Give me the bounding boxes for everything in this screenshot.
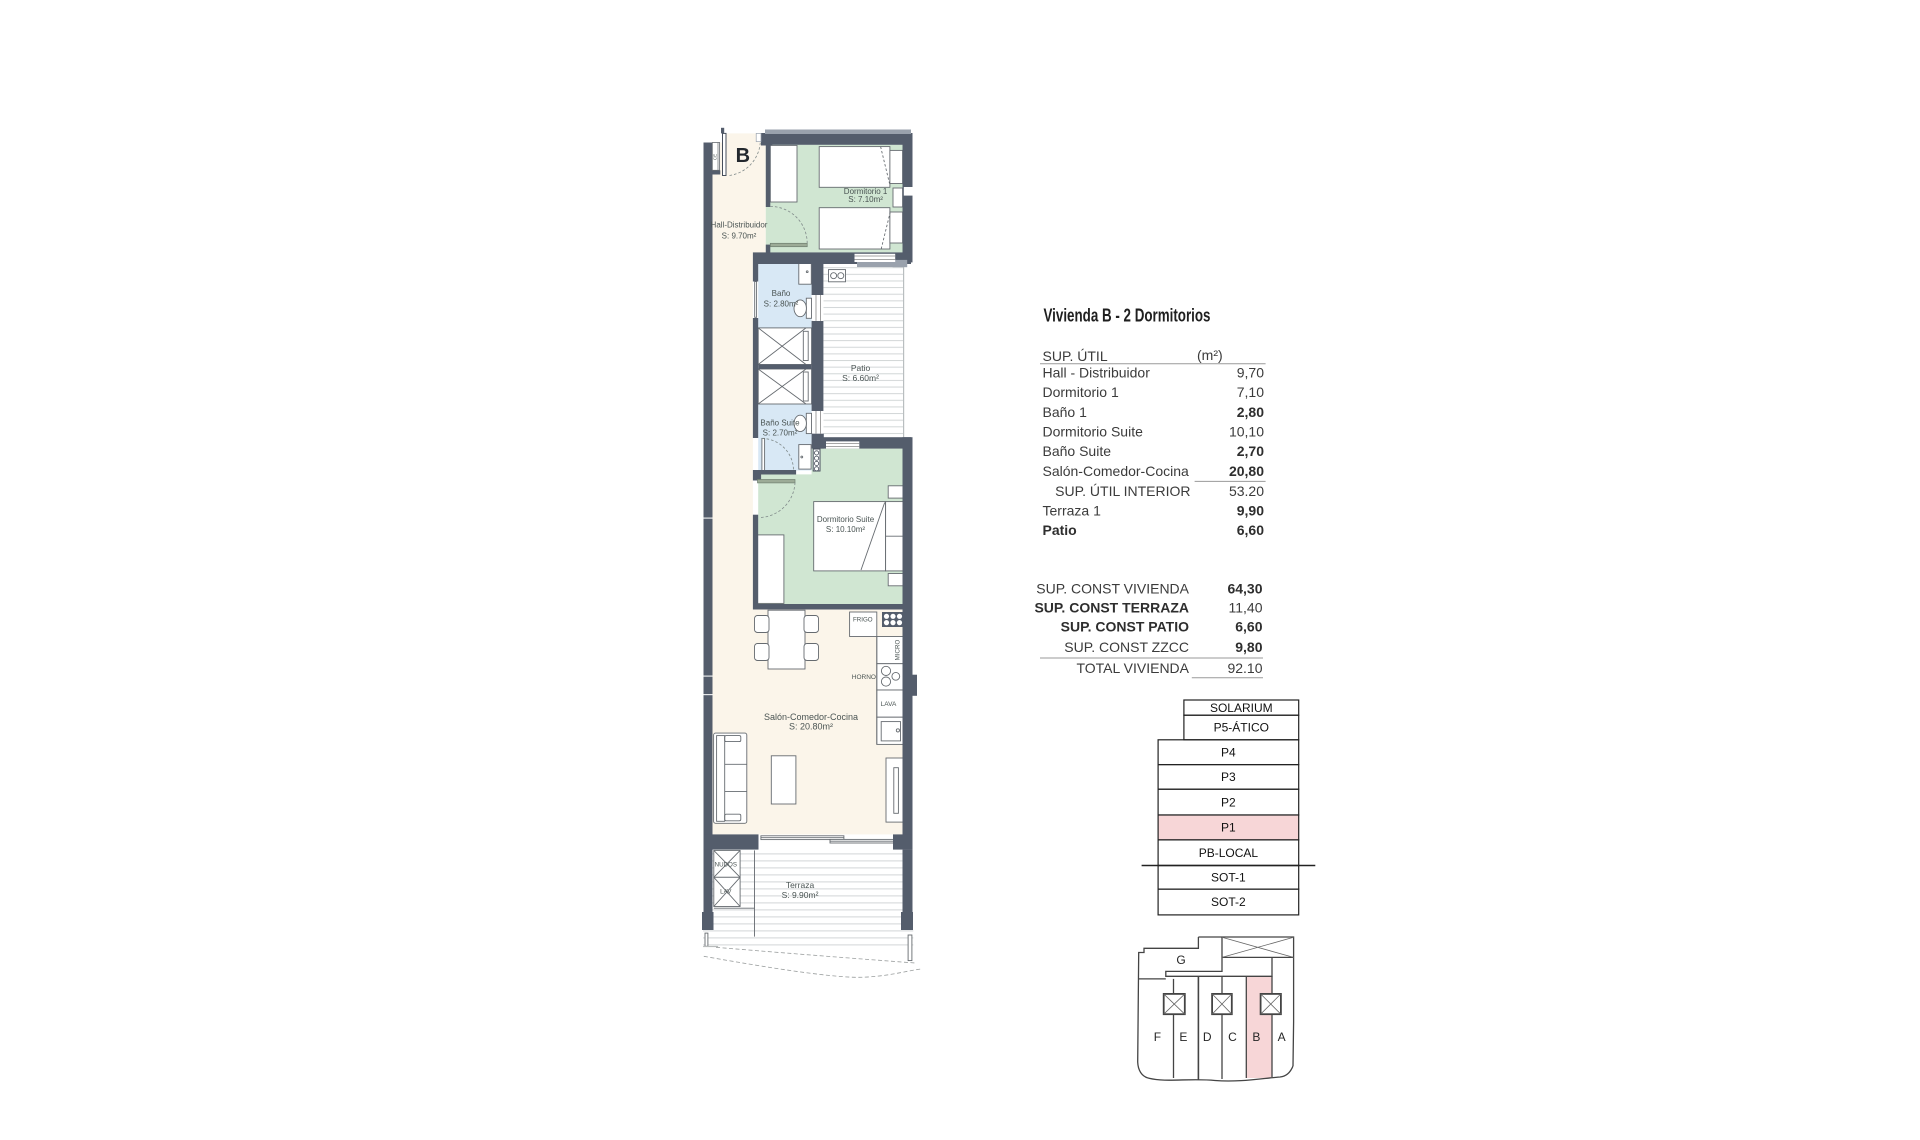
svg-text:SUP. CONST PATIO: SUP. CONST PATIO [1061,619,1189,635]
svg-text:NUDOS: NUDOS [715,862,737,869]
svg-text:LAV: LAV [720,888,732,895]
svg-text:SUP. CONST TERRAZA: SUP. CONST TERRAZA [1034,600,1189,616]
svg-text:SUP. CONST VIVIENDA: SUP. CONST VIVIENDA [1036,581,1189,597]
svg-text:Baño Suite: Baño Suite [1043,443,1112,459]
svg-text:P5-ÁTICO: P5-ÁTICO [1214,720,1269,735]
svg-text:A: A [1278,1030,1286,1044]
svg-text:Dormitorio Suite: Dormitorio Suite [817,515,875,524]
svg-text:P2: P2 [1221,795,1236,809]
svg-text:11,40: 11,40 [1229,600,1263,616]
svg-text:CE: CE [713,154,718,160]
svg-text:Hall - Distribuidor: Hall - Distribuidor [1043,364,1151,380]
svg-text:P4: P4 [1221,745,1236,759]
svg-text:S: 20.80m²: S: 20.80m² [789,721,833,731]
svg-text:Terraza: Terraza [786,880,815,890]
svg-text:10,10: 10,10 [1229,424,1264,440]
svg-text:B: B [736,145,750,167]
svg-text:SOT-2: SOT-2 [1211,895,1246,909]
svg-text:Salón-Comedor-Cocina: Salón-Comedor-Cocina [1043,463,1190,479]
svg-text:S: 9.70m²: S: 9.70m² [722,232,757,241]
svg-text:F: F [1154,1030,1161,1044]
svg-text:Baño: Baño [772,289,791,298]
svg-text:2,70: 2,70 [1237,443,1264,459]
svg-text:Baño Suite: Baño Suite [760,419,800,428]
svg-text:Dormitorio Suite: Dormitorio Suite [1043,424,1144,440]
svg-text:6,60: 6,60 [1235,619,1262,635]
svg-text:B: B [1252,1030,1260,1044]
svg-text:TOTAL VIVIENDA: TOTAL VIVIENDA [1076,660,1189,676]
svg-text:P1: P1 [1221,821,1236,835]
svg-text:D: D [1203,1030,1212,1044]
svg-text:C: C [1228,1030,1237,1044]
svg-text:SUP. CONST ZZCC: SUP. CONST ZZCC [1064,639,1189,655]
svg-text:FRIGO: FRIGO [853,617,873,624]
svg-text:SOT-1: SOT-1 [1211,871,1246,885]
svg-text:S: 9.90m²: S: 9.90m² [782,890,819,900]
svg-text:2,80: 2,80 [1237,404,1264,420]
svg-text:Patio: Patio [1043,522,1077,538]
svg-text:SUP. ÚTIL: SUP. ÚTIL [1043,348,1108,364]
svg-text:Dormitorio 1: Dormitorio 1 [1043,384,1119,400]
svg-text:SUP. ÚTIL INTERIOR: SUP. ÚTIL INTERIOR [1055,483,1190,499]
svg-text:S: 7.10m²: S: 7.10m² [848,195,883,204]
svg-text:Patio: Patio [851,363,871,373]
svg-text:Salón-Comedor-Cocina: Salón-Comedor-Cocina [764,712,858,722]
svg-text:20,80: 20,80 [1229,463,1264,479]
svg-text:S: 2.70m²: S: 2.70m² [763,429,798,438]
svg-text:PB-LOCAL: PB-LOCAL [1199,846,1259,860]
svg-text:6,60: 6,60 [1237,522,1264,538]
svg-text:S: 6.60m²: S: 6.60m² [842,373,879,383]
svg-text:53.20: 53.20 [1229,483,1264,499]
svg-text:Vivienda B - 2 Dormitorios: Vivienda B - 2 Dormitorios [1044,306,1211,326]
svg-text:S: 2.80m²: S: 2.80m² [764,300,799,309]
svg-text:S: 10.10m²: S: 10.10m² [826,525,865,534]
svg-text:Baño 1: Baño 1 [1043,404,1088,420]
svg-text:9,70: 9,70 [1237,364,1264,380]
svg-text:92.10: 92.10 [1227,660,1262,676]
svg-text:LAVA: LAVA [881,701,897,708]
svg-text:SOLARIUM: SOLARIUM [1210,701,1273,715]
svg-text:Terraza 1: Terraza 1 [1043,502,1102,518]
svg-text:7,10: 7,10 [1237,384,1264,400]
svg-text:G: G [1176,953,1185,967]
svg-text:P3: P3 [1221,770,1236,784]
svg-text:(m²): (m²) [1197,347,1223,363]
svg-text:Hall-Distribuidor: Hall-Distribuidor [711,221,768,230]
svg-text:64,30: 64,30 [1227,581,1262,597]
svg-text:HORNO: HORNO [852,674,876,681]
svg-text:E: E [1179,1030,1187,1044]
svg-text:9,80: 9,80 [1235,639,1262,655]
svg-text:MICRO: MICRO [895,640,902,661]
svg-text:9,90: 9,90 [1237,502,1264,518]
